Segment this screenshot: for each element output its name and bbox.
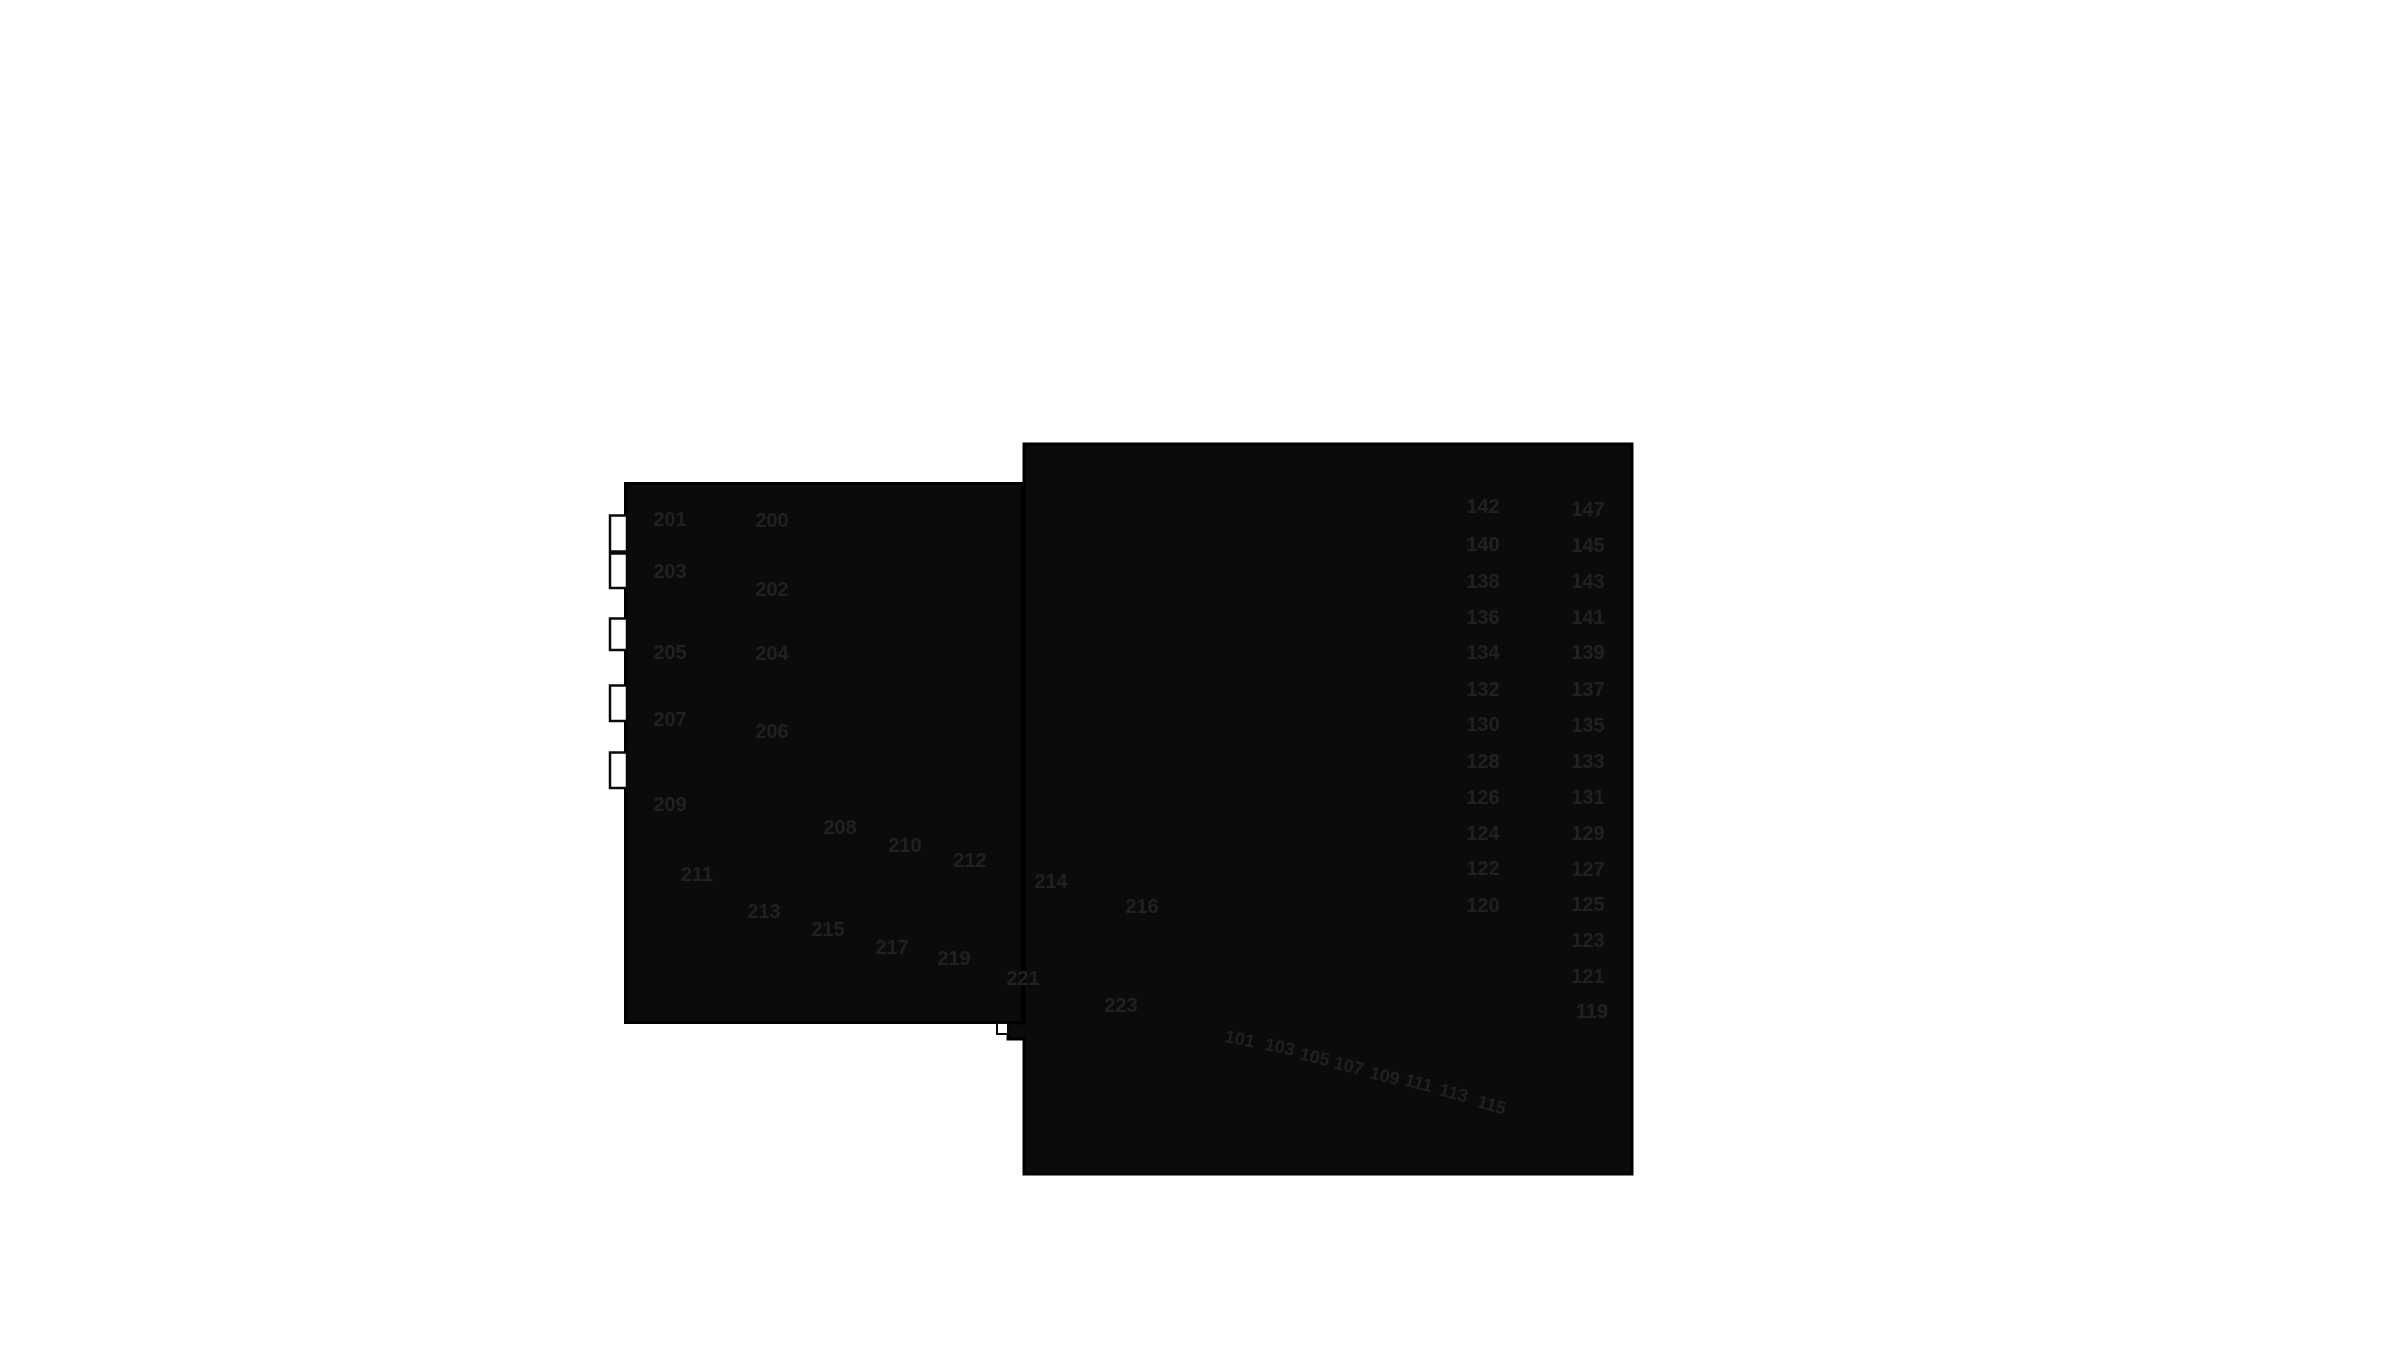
svg-text:216: 216: [1125, 896, 1158, 918]
svg-text:203: 203: [653, 561, 686, 583]
svg-text:205: 205: [653, 642, 686, 664]
svg-text:211: 211: [681, 864, 713, 886]
svg-text:133: 133: [1571, 751, 1604, 773]
svg-text:136: 136: [1466, 607, 1499, 629]
svg-text:122: 122: [1466, 858, 1499, 880]
svg-text:132: 132: [1466, 679, 1499, 701]
svg-text:141: 141: [1571, 607, 1604, 629]
svg-text:120: 120: [1466, 895, 1499, 917]
svg-text:124: 124: [1466, 823, 1500, 845]
svg-text:129: 129: [1571, 823, 1604, 845]
svg-text:128: 128: [1466, 751, 1499, 773]
svg-text:217: 217: [875, 937, 908, 959]
svg-text:210: 210: [888, 835, 921, 857]
svg-text:119: 119: [1576, 1001, 1608, 1023]
svg-text:137: 137: [1571, 679, 1604, 701]
svg-text:209: 209: [653, 794, 686, 816]
svg-text:201: 201: [653, 509, 686, 531]
svg-text:135: 135: [1571, 715, 1604, 737]
svg-text:219: 219: [937, 948, 970, 970]
svg-text:125: 125: [1571, 894, 1604, 916]
svg-text:131: 131: [1571, 787, 1604, 809]
svg-text:207: 207: [653, 709, 686, 731]
svg-text:142: 142: [1466, 496, 1499, 518]
svg-text:202: 202: [755, 579, 788, 601]
svg-text:212: 212: [953, 850, 986, 872]
svg-text:139: 139: [1571, 642, 1604, 664]
svg-text:221: 221: [1006, 968, 1039, 990]
svg-text:134: 134: [1466, 642, 1500, 664]
svg-text:204: 204: [755, 643, 789, 665]
svg-text:138: 138: [1466, 571, 1499, 593]
svg-text:140: 140: [1466, 534, 1499, 556]
svg-text:213: 213: [747, 901, 780, 923]
svg-text:200: 200: [755, 510, 788, 532]
svg-text:214: 214: [1034, 871, 1068, 893]
svg-text:121: 121: [1571, 966, 1604, 988]
svg-text:143: 143: [1571, 571, 1604, 593]
svg-text:223: 223: [1104, 995, 1137, 1017]
svg-text:123: 123: [1571, 930, 1604, 952]
svg-text:147: 147: [1571, 499, 1604, 521]
svg-text:208: 208: [823, 817, 856, 839]
svg-text:215: 215: [811, 919, 844, 941]
svg-text:130: 130: [1466, 714, 1499, 736]
svg-text:126: 126: [1466, 787, 1499, 809]
svg-text:145: 145: [1571, 535, 1604, 557]
svg-text:127: 127: [1571, 859, 1604, 881]
svg-text:206: 206: [755, 721, 788, 743]
